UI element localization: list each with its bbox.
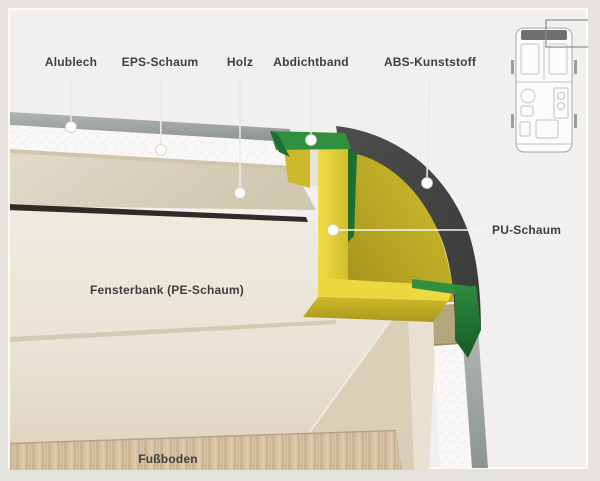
leader-dot-alublech xyxy=(66,122,77,133)
leader-line-eps xyxy=(160,77,161,144)
label-alublech: Alublech xyxy=(45,55,97,69)
label-fussboden: Fußboden xyxy=(138,452,198,466)
label-holz: Holz xyxy=(227,55,253,69)
leader-dot-holz xyxy=(235,188,246,199)
label-abdichtband: Abdichtband xyxy=(273,55,349,69)
label-abs-kunststoff: ABS-Kunststoff xyxy=(384,55,476,69)
label-fensterbank: Fensterbank (PE-Schaum) xyxy=(90,283,244,297)
pu-bracket-vertical xyxy=(318,142,348,300)
caravan-floorplan-icon xyxy=(511,20,592,152)
leader-dot-pu xyxy=(328,225,339,236)
cutaway-illustration xyxy=(0,0,600,481)
label-eps-schaum: EPS-Schaum xyxy=(122,55,199,69)
leader-dot-eps xyxy=(156,145,167,156)
leader-line-abs xyxy=(427,77,430,177)
leader-dot-abs xyxy=(422,178,433,189)
leader-dot-abdichtband xyxy=(306,135,317,146)
floorplan-cab-band xyxy=(521,30,567,40)
label-pu-schaum: PU-Schaum xyxy=(492,223,561,237)
